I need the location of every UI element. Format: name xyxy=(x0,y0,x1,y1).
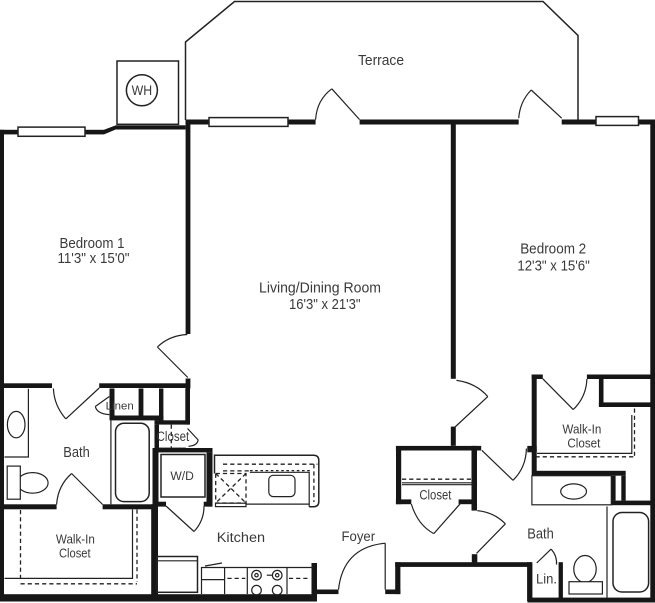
svg-text:Closet: Closet xyxy=(59,546,91,560)
svg-text:WH: WH xyxy=(132,82,153,98)
svg-text:Terrace: Terrace xyxy=(358,53,404,69)
svg-text:Walk-In: Walk-In xyxy=(562,422,601,436)
svg-text:16'3" x 21'3": 16'3" x 21'3" xyxy=(289,297,361,313)
svg-text:Bedroom 2: Bedroom 2 xyxy=(520,241,586,257)
svg-text:Bedroom 1: Bedroom 1 xyxy=(60,236,125,252)
svg-text:Walk-In: Walk-In xyxy=(56,533,95,547)
svg-text:Closet: Closet xyxy=(419,488,451,503)
svg-text:Kitchen: Kitchen xyxy=(217,530,265,546)
svg-text:Bath: Bath xyxy=(527,527,554,543)
svg-text:Closet: Closet xyxy=(157,429,190,444)
svg-text:Foyer: Foyer xyxy=(342,529,376,545)
svg-text:Living/Dining Room: Living/Dining Room xyxy=(259,281,381,297)
svg-text:Closet: Closet xyxy=(567,437,600,451)
svg-text:Lin.: Lin. xyxy=(536,571,557,586)
svg-text:12'3" x 15'6": 12'3" x 15'6" xyxy=(517,259,590,275)
svg-text:Linen: Linen xyxy=(106,400,134,412)
svg-text:11'3" x 15'0": 11'3" x 15'0" xyxy=(58,251,130,267)
svg-text:Bath: Bath xyxy=(63,445,90,461)
svg-text:W/D: W/D xyxy=(170,469,194,483)
